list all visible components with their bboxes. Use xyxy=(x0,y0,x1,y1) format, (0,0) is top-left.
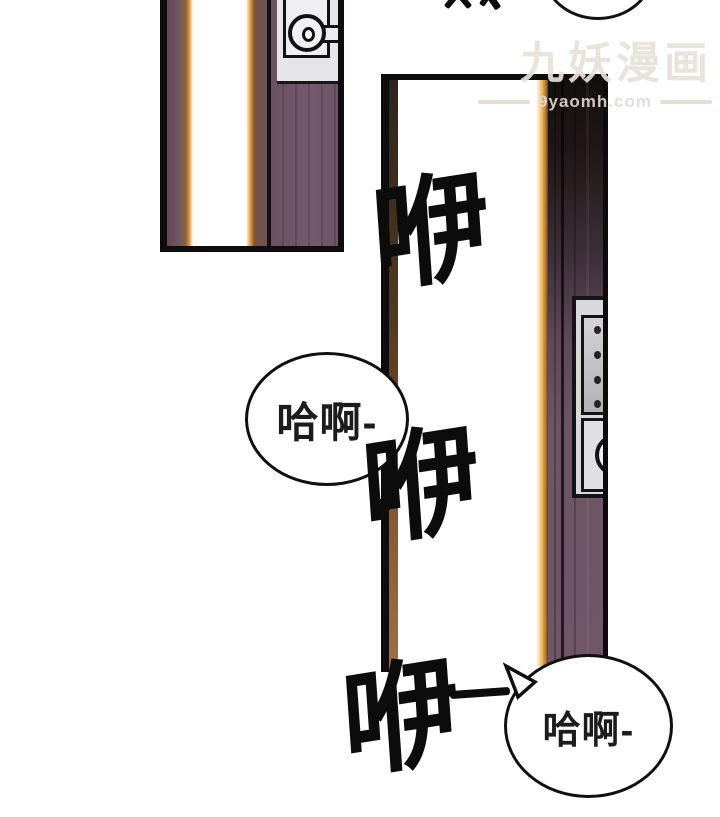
watermark: 九妖漫画 9yaomh.com xyxy=(478,42,712,112)
light-glow xyxy=(536,80,548,666)
light-glow-right xyxy=(246,0,254,246)
door-wood-streak xyxy=(554,80,556,664)
panel-border-right xyxy=(603,80,608,664)
watermark-dash-left xyxy=(478,100,530,104)
speech-text: 哈啊- xyxy=(543,699,635,754)
sfx-fragment xyxy=(479,0,489,7)
watermark-title: 九妖漫画 xyxy=(478,42,712,86)
watermark-site: 9yaomh.com xyxy=(538,92,652,112)
sfx-fragment xyxy=(458,0,472,9)
light-glow-left xyxy=(186,0,193,246)
keypad-button xyxy=(594,326,601,334)
deadbolt-lock-icon xyxy=(277,0,338,84)
panel-border-bottom xyxy=(160,246,344,252)
watermark-dash-right xyxy=(660,100,712,104)
sfx-fragment xyxy=(444,0,458,9)
speech-bubble-cutoff-top xyxy=(542,0,654,20)
panel-door-top-left xyxy=(160,0,344,252)
comic-page: 九妖漫画 9yaomh.com xyxy=(0,0,720,817)
door-panel xyxy=(548,80,608,664)
sfx-text: 咿 xyxy=(339,651,464,788)
keypad-button xyxy=(594,351,601,359)
panel-door-main xyxy=(381,74,608,674)
speech-bubble-tail xyxy=(492,658,540,704)
door-light-gap xyxy=(193,0,246,246)
lock-keyhole xyxy=(302,27,315,42)
sfx-text: 咿 xyxy=(359,419,484,556)
door-edge-strip xyxy=(254,0,267,246)
watermark-site-row: 9yaomh.com xyxy=(478,92,712,112)
panel-border-left xyxy=(160,0,167,252)
sfx-text: 咿 xyxy=(369,165,494,302)
door-frame-strip xyxy=(167,0,186,246)
door-edge-line xyxy=(561,80,564,664)
sfx-fragment xyxy=(486,0,501,10)
keypad-button xyxy=(594,400,601,408)
keypad-button xyxy=(594,376,601,384)
panel-border-right xyxy=(338,0,344,252)
